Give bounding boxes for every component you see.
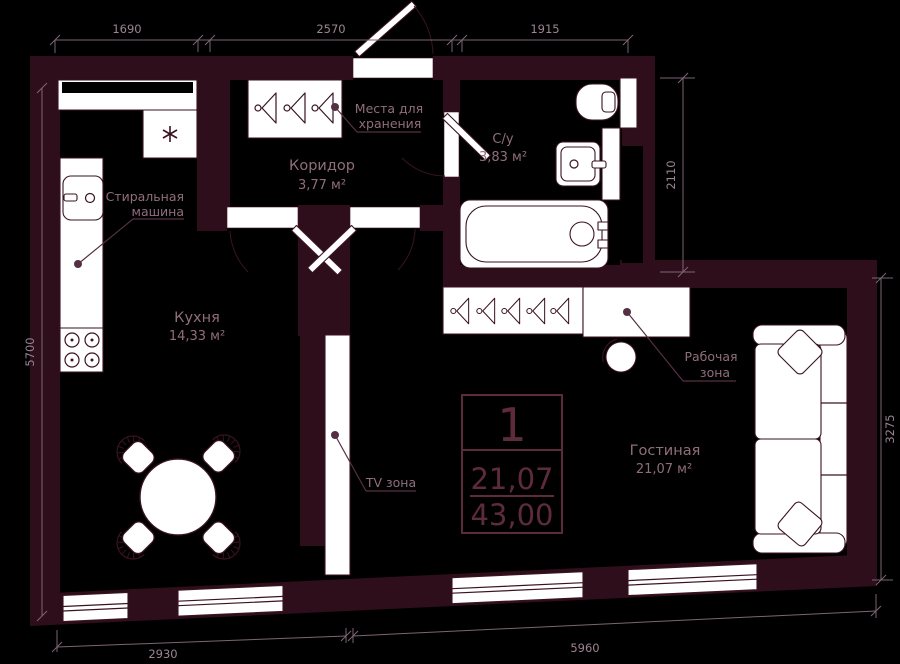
tv-callout-dot	[331, 431, 339, 439]
stove	[60, 328, 103, 372]
dimension-left: 5700	[23, 337, 37, 366]
desk-chair	[598, 335, 642, 378]
bathtub	[460, 200, 608, 268]
window	[63, 593, 128, 622]
dimension-top-3: 1915	[530, 22, 559, 36]
bathroom-left-wall-upper	[443, 80, 460, 114]
desk	[583, 287, 690, 337]
sofa-back	[820, 330, 847, 548]
info-box: 1 21,07 43,00	[462, 395, 562, 533]
right-wall	[847, 286, 877, 564]
window	[452, 572, 583, 604]
bathroom-sink	[556, 142, 606, 186]
entrance-opening	[353, 58, 433, 78]
tv-partition-wall	[300, 335, 325, 546]
living-label: Гостиная	[630, 443, 701, 459]
toilet	[576, 84, 618, 120]
living-door-arc	[398, 229, 415, 270]
living-wardrobe	[443, 287, 583, 334]
storage-callout-dot	[331, 103, 339, 111]
storage-callout-line2: хранения	[359, 116, 422, 131]
kitchen-label: Кухня	[174, 310, 220, 326]
kitchen-area: 14,33 м²	[169, 329, 225, 344]
work-callout-dot	[623, 308, 631, 316]
bathtub-faucet	[598, 240, 608, 248]
kitchen-corridor-partition	[197, 80, 230, 207]
washer-callout-line1: Стиральная	[106, 189, 184, 204]
storage-callout-line1: Места для	[355, 101, 423, 116]
bathtub-faucet	[598, 222, 608, 230]
toilet-duct	[620, 78, 637, 128]
dimension-bottom-left: 2930	[148, 647, 177, 661]
kitchen-counter-edge	[62, 82, 193, 93]
top-wall-left	[30, 56, 353, 80]
corridor-label: Коридор	[289, 158, 355, 174]
window	[178, 585, 283, 616]
dimension-top-1: 1690	[112, 22, 141, 36]
window	[628, 564, 757, 596]
info-box-living-area: 21,07	[470, 462, 553, 496]
bathroom-label: С/у	[492, 132, 513, 147]
corridor-bottom-wall-left	[197, 205, 227, 231]
bathroom-fixtures	[460, 78, 643, 268]
bathroom-left-wall-lower	[443, 176, 460, 266]
sofa	[753, 325, 847, 553]
entrance-door-arc	[414, 6, 433, 54]
dining-table	[140, 459, 216, 535]
bathroom-area: 3,83 м²	[479, 150, 527, 165]
dimension-right-upper: 2110	[664, 160, 678, 189]
work-callout-line1: Рабочая	[684, 349, 737, 364]
storage-callout: Места для хранения	[331, 101, 423, 132]
corridor-area: 3,77 м²	[298, 178, 346, 193]
ventilation-shaft	[622, 146, 643, 263]
corridor-wardrobe	[248, 80, 342, 138]
living-top-wall	[620, 260, 877, 288]
washer-callout-line2: машина	[132, 204, 184, 219]
floor-plan: Кухня 14,33 м² Коридор 3,77 м² С/у 3,83 …	[0, 0, 900, 664]
washer-callout-dot	[74, 260, 82, 268]
info-box-rooms: 1	[497, 398, 526, 452]
kitchen-door-opening	[227, 207, 298, 228]
bathtub-drain	[570, 222, 594, 246]
dimension-bottom-right: 5960	[570, 641, 599, 655]
tv-callout-label: TV зона	[365, 475, 416, 490]
living-door-opening	[350, 207, 420, 228]
dining-set	[110, 428, 246, 565]
kitchen-door-arc	[230, 231, 248, 272]
bathroom-door-arc	[402, 158, 445, 176]
living-area: 21,07 м²	[636, 462, 692, 477]
kitchen-sink	[63, 176, 103, 220]
dimension-top-2: 2570	[316, 22, 345, 36]
floor-plan-page: Кухня 14,33 м² Коридор 3,77 м² С/у 3,83 …	[0, 0, 900, 664]
top-wall-right	[433, 56, 655, 80]
work-callout-line2: зона	[700, 365, 730, 380]
dimension-right-lower: 3275	[883, 414, 897, 443]
entrance-door-leaf	[355, 1, 417, 56]
info-box-total-area: 43,00	[470, 498, 553, 532]
